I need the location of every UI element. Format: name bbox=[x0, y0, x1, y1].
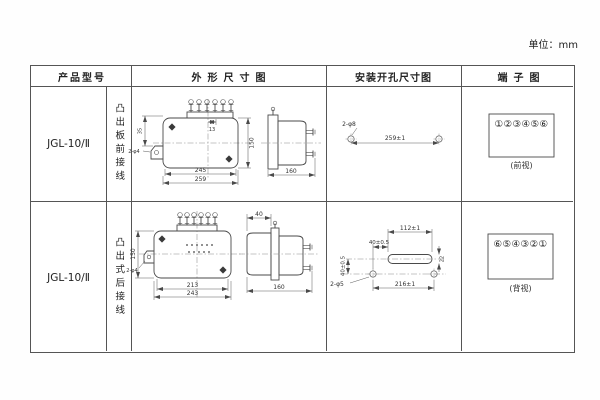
dim-height-label: 150 bbox=[249, 137, 256, 149]
wiring-text-row2: 凸出式后接线 bbox=[114, 237, 124, 318]
terminal-view-label: (背视) bbox=[509, 283, 531, 293]
terminal-screw-icon bbox=[192, 213, 197, 226]
terminal-screw-icon bbox=[229, 100, 234, 113]
mounting-screw-icon bbox=[158, 235, 165, 242]
terminal-screw-icon bbox=[185, 213, 190, 226]
terminal-view-label: (前视) bbox=[510, 160, 532, 170]
side-bracket bbox=[151, 146, 163, 159]
dim-slot-offset-label: 40±0.5 bbox=[369, 240, 390, 246]
dim-bracket-holes: 2-φ4 bbox=[128, 149, 150, 155]
dim-width-outer-label: 259 bbox=[195, 176, 207, 183]
dim-depth: 160 bbox=[247, 271, 312, 293]
dim-slot-width: 112±1 bbox=[388, 225, 432, 252]
header-product-model: 产品型号 bbox=[31, 66, 131, 86]
model-cell-row2: JGL-10/Ⅱ bbox=[31, 201, 106, 354]
front-view bbox=[151, 100, 238, 169]
wiring-text-row1: 凸出板前接线 bbox=[114, 103, 124, 184]
terminal-screw-icon bbox=[213, 213, 218, 226]
dim-width-inner-label: 245 bbox=[195, 167, 207, 174]
header-terminal-drawing: 端子图 bbox=[461, 66, 576, 86]
outline-drawing-row1: 2-φ4 35 13 150 bbox=[131, 86, 326, 201]
dim-hole-size: 2-φ5 bbox=[330, 277, 369, 288]
dim-hole-spacing: 259±1 bbox=[351, 135, 439, 143]
dim-slot-height: 22 bbox=[439, 246, 446, 272]
dim-rise: 40±0.5 bbox=[341, 255, 349, 276]
outline-drawing-row2: 2-φ4 150 213 243 bbox=[131, 201, 326, 354]
dim-terminal-pitch: 13 bbox=[208, 119, 216, 133]
dim-bracket-holes-label: 2-φ4 bbox=[128, 149, 139, 155]
dim-bracket-drop-label: 35 bbox=[138, 128, 144, 134]
terminal-stud-dots bbox=[186, 244, 213, 253]
rear-bolt-icon bbox=[303, 265, 312, 271]
side-view bbox=[261, 107, 321, 169]
dim-bracket-holes-label: 2-φ4 bbox=[126, 268, 137, 274]
mounting-screw-icon bbox=[219, 266, 226, 273]
dim-width-outer-label: 243 bbox=[187, 290, 199, 297]
dim-hole-spacing-label: 259±1 bbox=[385, 135, 405, 142]
datasheet-page: 单位：mm 产品型号 外形尺寸图 安装开孔尺寸图 端子图 JGL-10/Ⅱ 凸出… bbox=[0, 0, 600, 400]
dim-slot-height-label: 22 bbox=[440, 256, 446, 262]
terminal-screw-icon bbox=[213, 100, 218, 113]
terminal-screw-icon bbox=[189, 100, 194, 113]
wiring-cell-row1: 凸出板前接线 bbox=[106, 86, 131, 201]
terminal-screw-icon bbox=[178, 213, 183, 226]
side-bracket bbox=[144, 251, 154, 263]
dim-hole-size: 2-φ8 bbox=[342, 121, 357, 135]
dim-protrusion: 40 bbox=[247, 211, 271, 231]
terminal-screw-icon bbox=[206, 213, 211, 226]
dim-height-label: 150 bbox=[130, 248, 137, 260]
terminal-screw-icon bbox=[197, 100, 202, 113]
model-cell-row1: JGL-10/Ⅱ bbox=[31, 86, 106, 201]
dim-slot-width-label: 112±1 bbox=[400, 225, 420, 232]
dim-width-inner-label: 213 bbox=[187, 282, 199, 289]
install-drawing-row2: 112±1 40±0.5 40±0.5 2-φ5 216±1 bbox=[326, 201, 461, 354]
dim-bracket-drop: 35 bbox=[138, 116, 164, 146]
terminal-screw-icon bbox=[205, 100, 210, 113]
dim-hole-spacing: 216±1 bbox=[373, 280, 434, 291]
terminal-drawing-row2: ⑥⑤④③②① (背视) bbox=[461, 201, 576, 354]
terminal-numbers: ①②③④⑤⑥ bbox=[494, 119, 548, 130]
rear-bolt-icon bbox=[306, 129, 315, 135]
dim-rise-label: 40±0.5 bbox=[341, 255, 347, 276]
dim-hole-size-label: 2-φ5 bbox=[330, 281, 344, 288]
rear-bolt-icon bbox=[306, 151, 315, 157]
install-drawing-row1: 259±1 2-φ8 bbox=[326, 86, 461, 201]
dim-depth-label: 160 bbox=[285, 168, 297, 175]
dim-depth: 160 bbox=[268, 158, 315, 177]
unit-label: 单位：mm bbox=[529, 36, 578, 51]
header-outline-drawing: 外形尺寸图 bbox=[131, 66, 326, 86]
rear-bolt-icon bbox=[303, 244, 312, 250]
dim-protrusion-label: 40 bbox=[255, 211, 263, 218]
front-view bbox=[144, 213, 231, 279]
dim-hole-spacing-label: 216±1 bbox=[395, 281, 415, 288]
mounting-screw-icon bbox=[225, 155, 232, 162]
terminal-screw-icon bbox=[221, 100, 226, 113]
terminal-screw-icon bbox=[199, 213, 204, 226]
dim-depth-label: 160 bbox=[273, 284, 285, 291]
dim-hole-size-label: 2-φ8 bbox=[342, 121, 356, 128]
header-install-drawing: 安装开孔尺寸图 bbox=[326, 66, 461, 86]
dim-terminal-pitch-label: 13 bbox=[209, 127, 215, 133]
terminal-drawing-row1: ①②③④⑤⑥ (前视) bbox=[461, 86, 576, 201]
dim-slot-offset: 40±0.5 bbox=[369, 240, 390, 269]
wiring-cell-row2: 凸出式后接线 bbox=[106, 201, 131, 354]
mounting-screw-icon bbox=[168, 123, 175, 130]
spec-table: 产品型号 外形尺寸图 安装开孔尺寸图 端子图 JGL-10/Ⅱ 凸出板前接线 J… bbox=[30, 65, 575, 353]
terminal-numbers: ⑥⑤④③②① bbox=[493, 239, 547, 250]
side-view bbox=[239, 221, 319, 280]
